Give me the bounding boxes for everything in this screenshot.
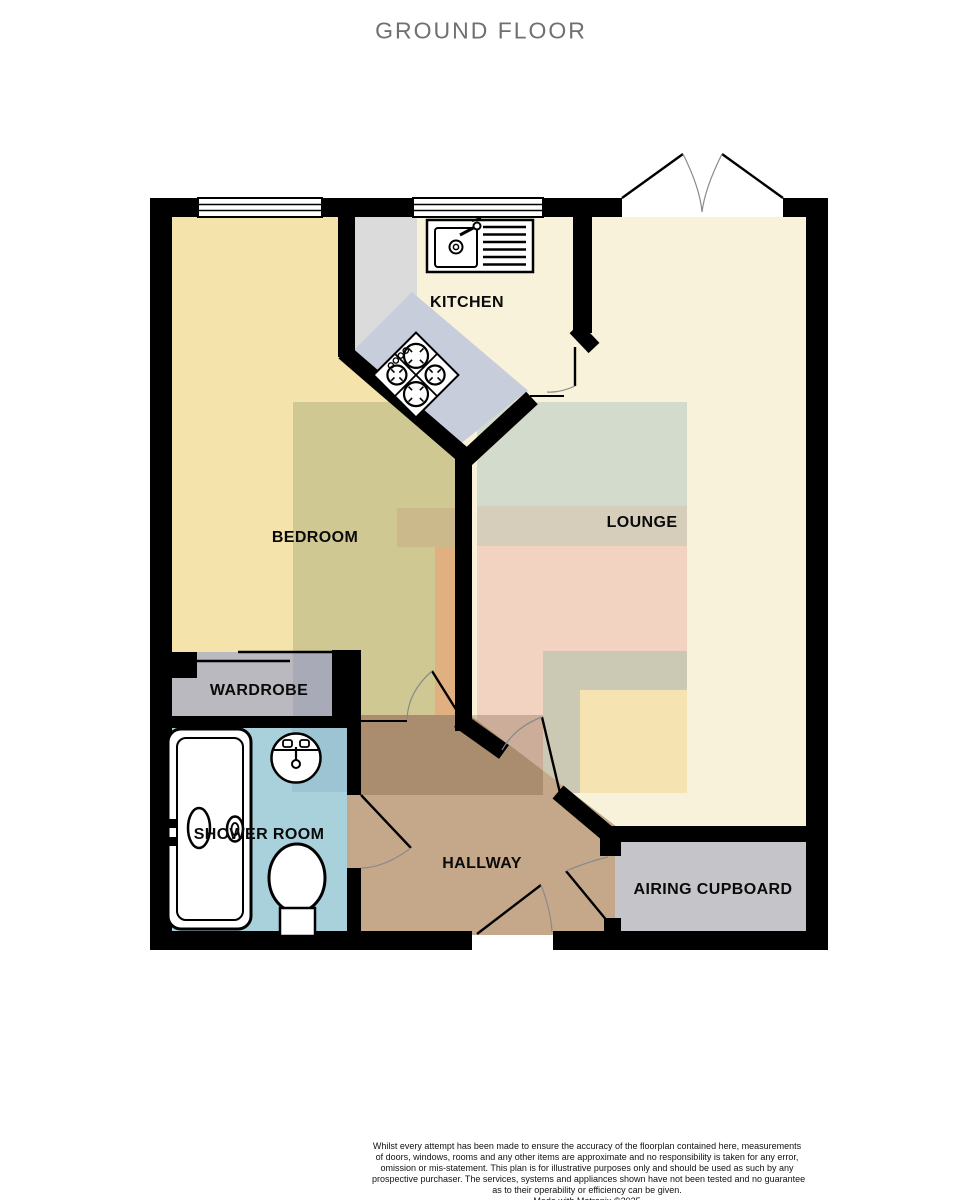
window-icon (413, 198, 543, 217)
disclaimer-line: as to their operability or efficiency ca… (372, 1185, 802, 1196)
metropix-credit: Made with Metropix ©2025 (372, 1196, 802, 1200)
floorplan-page: GROUND FLOOR (0, 0, 980, 1200)
room-label-shower-room: SHOWER ROOM (194, 826, 325, 844)
room-label-lounge: LOUNGE (607, 514, 678, 532)
disclaimer-line: prospective purchaser. The services, sys… (372, 1174, 802, 1185)
window-icon (198, 198, 322, 217)
sink-icon (427, 218, 533, 272)
hallway-shading (347, 715, 543, 795)
room-label-airing-cupboard: AIRING CUPBOARD (634, 881, 793, 899)
room-label-bedroom: BEDROOM (272, 529, 358, 547)
basin-icon (272, 734, 321, 783)
disclaimer: Whilst every attempt has been made to en… (372, 1141, 802, 1200)
french-doors-icon (622, 154, 783, 212)
room-label-wardrobe: WARDROBE (210, 682, 308, 700)
floorplan-canvas (0, 0, 980, 1200)
disclaimer-line: of doors, windows, rooms and any other i… (372, 1152, 802, 1163)
disclaimer-line: Whilst every attempt has been made to en… (372, 1141, 802, 1152)
room-label-hallway: HALLWAY (442, 855, 522, 873)
disclaimer-line: omission or mis-statement. This plan is … (372, 1163, 802, 1174)
room-label-kitchen: KITCHEN (430, 294, 504, 312)
